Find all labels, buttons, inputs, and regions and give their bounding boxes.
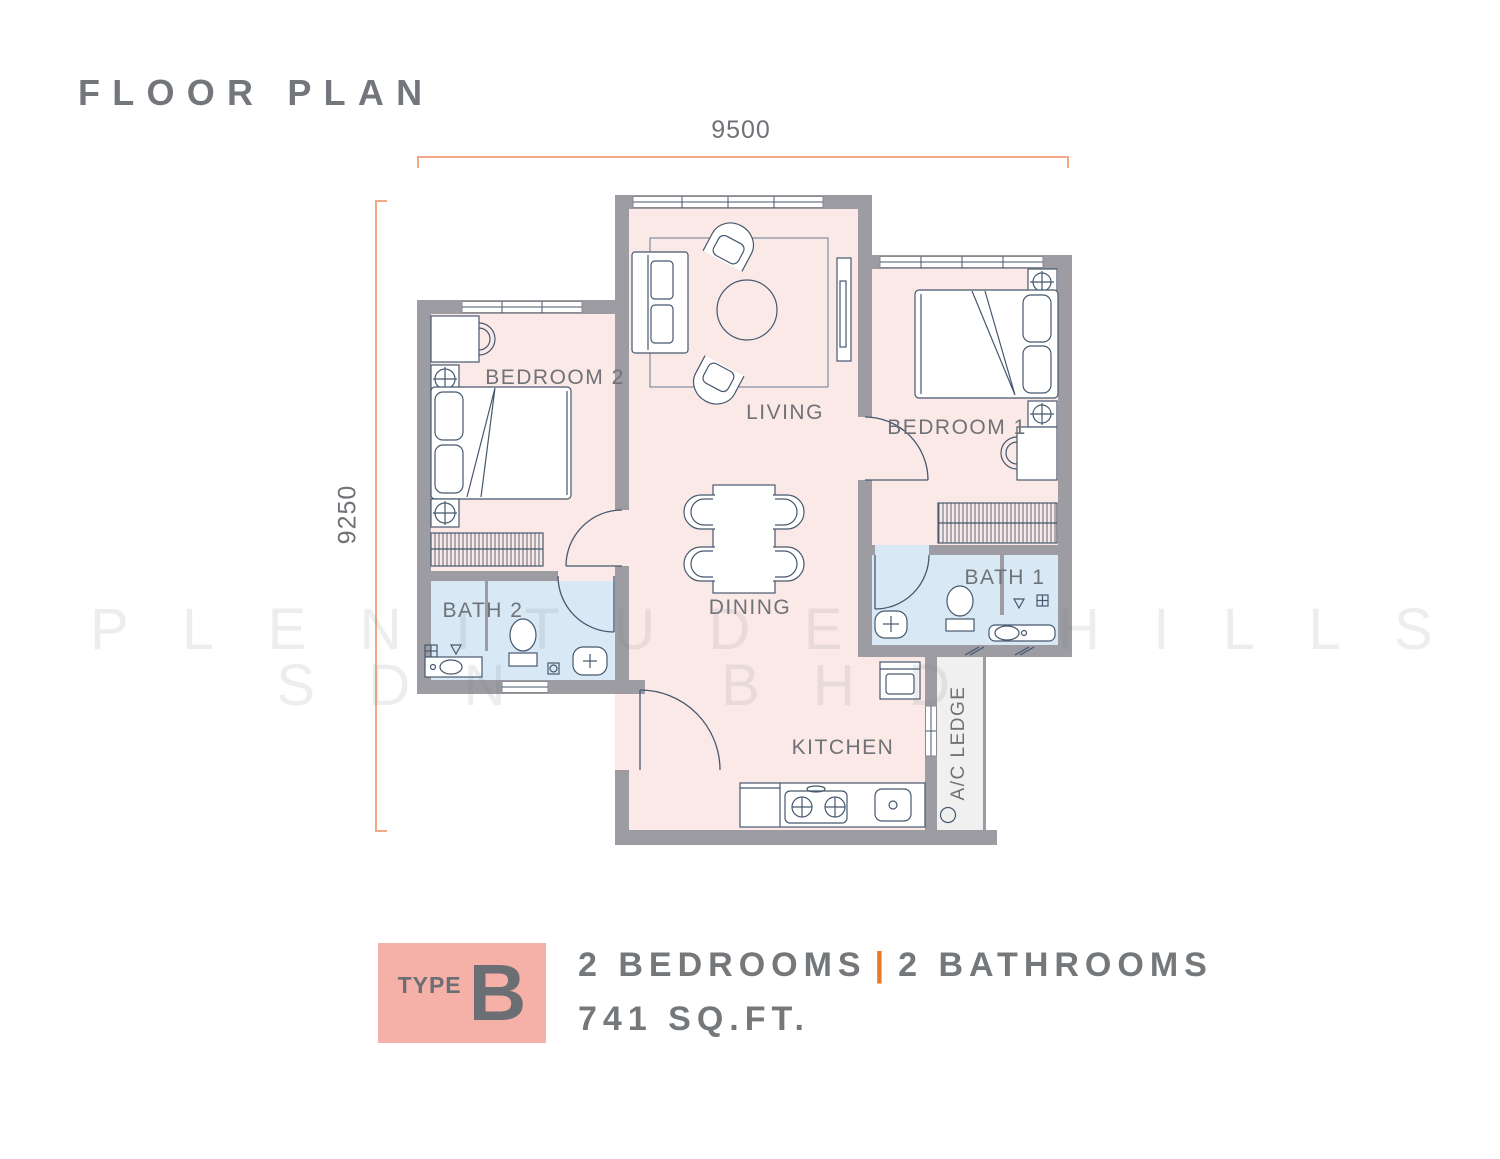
page-title: FLOOR PLAN	[78, 72, 434, 114]
legend-bedrooms: 2 BEDROOMS	[578, 946, 867, 984]
living-sofa	[632, 252, 688, 353]
bedroom2-wardrobe	[431, 533, 543, 566]
label-ac-ledge: A/C LEDGE	[948, 686, 969, 801]
label-dining: DINING	[709, 596, 792, 619]
ledge-window	[926, 706, 937, 756]
bedroom2-window	[462, 302, 582, 314]
bedroom1-wardrobe	[938, 503, 1057, 543]
floor-plan-page: FLOOR PLAN 9500 9250	[0, 0, 1500, 1159]
label-bath1: BATH 1	[965, 566, 1046, 589]
bedroom1-window	[880, 257, 1043, 269]
living-tv-console	[837, 258, 851, 361]
floor-plan-drawing: BEDROOM 2 LIVING BEDROOM 1 BATH 2 DINING…	[417, 195, 1072, 850]
type-badge: TYPE B	[378, 943, 546, 1043]
dimension-width-bracket	[417, 156, 1069, 168]
legend-separator: |	[867, 946, 899, 984]
label-bath2: BATH 2	[443, 599, 524, 622]
legend-area: 741 SQ.FT.	[578, 1000, 810, 1039]
label-bedroom1: BEDROOM 1	[887, 416, 1027, 439]
dimension-height-bracket	[375, 200, 387, 832]
kitchen-counter	[740, 783, 925, 827]
bedroom2-nightstand-2	[431, 499, 459, 527]
legend-rooms-line: 2 BEDROOMS|2 BATHROOMS	[578, 946, 1213, 985]
kitchen-appliance	[880, 662, 920, 699]
dining-chair	[773, 495, 804, 529]
type-badge-label: TYPE	[398, 972, 462, 999]
dining-chair	[773, 547, 804, 581]
bedroom1-bed	[915, 290, 1058, 398]
dining-chair	[684, 495, 715, 529]
label-kitchen: KITCHEN	[792, 736, 895, 759]
label-bedroom2: BEDROOM 2	[485, 366, 625, 389]
dimension-width-label: 9500	[417, 116, 1065, 145]
label-living: LIVING	[746, 401, 824, 424]
dimension-height-label: 9250	[334, 455, 363, 575]
dining-chair	[684, 547, 715, 581]
living-window	[633, 197, 823, 209]
legend-bathrooms: 2 BATHROOMS	[898, 946, 1213, 984]
type-badge-value: B	[469, 953, 527, 1033]
bedroom1-nightstand-2	[1028, 401, 1057, 427]
bath2-window	[502, 682, 548, 693]
bedroom2-bed	[431, 387, 571, 499]
